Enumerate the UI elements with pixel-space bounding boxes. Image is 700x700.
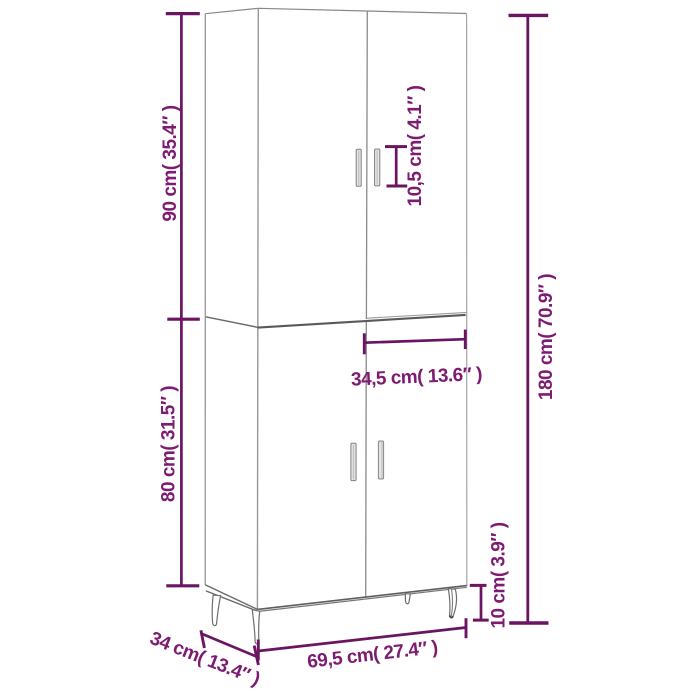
- svg-text:80 cm( 31.5″ ): 80 cm( 31.5″ ): [159, 386, 180, 502]
- svg-text:34,5 cm( 13.6″ ): 34,5 cm( 13.6″ ): [351, 364, 483, 391]
- svg-text:34 cm( 13.4″ ): 34 cm( 13.4″ ): [147, 628, 263, 690]
- svg-text:180 cm( 70.9″ ): 180 cm( 70.9″ ): [536, 274, 557, 400]
- svg-text:10,5 cm( 4.1″ ): 10,5 cm( 4.1″ ): [405, 85, 426, 206]
- svg-text:90 cm( 35.4″ ): 90 cm( 35.4″ ): [160, 105, 181, 221]
- svg-text:10 cm( 3.9″ ): 10 cm( 3.9″ ): [488, 522, 509, 628]
